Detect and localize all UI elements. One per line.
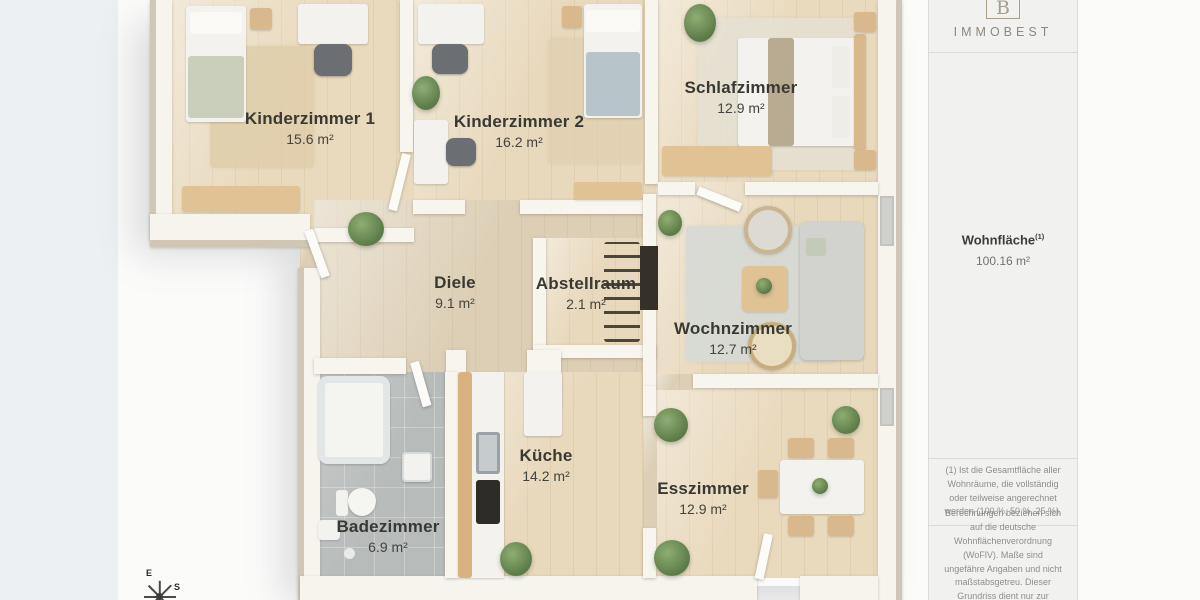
footnote-marker: (1) xyxy=(1035,232,1044,241)
room-label-schlafzimmer: Schlafzimmer 12.9 m² xyxy=(685,78,798,116)
dining-chair xyxy=(828,438,854,458)
flue-panel xyxy=(640,246,658,310)
sidebar: B IMMOBEST Wohnfläche(1) 100.16 m² (1) I… xyxy=(928,0,1078,600)
bed-pillow xyxy=(832,96,850,138)
headboard xyxy=(854,34,866,150)
background-left-strip xyxy=(0,0,118,600)
room-area: 12.7 m² xyxy=(674,341,792,357)
wall-under-schlafzimmer-b xyxy=(745,182,878,195)
logo-letter: B xyxy=(996,0,1010,18)
plant xyxy=(812,478,828,494)
dresser xyxy=(662,146,772,176)
sofa-pillow xyxy=(806,238,826,256)
room-area: 2.1 m² xyxy=(536,296,636,312)
wall-k2-schlafzimmer xyxy=(645,0,658,184)
stove xyxy=(476,480,500,524)
wall-exterior-bottom-right xyxy=(800,576,878,600)
room-name: Abstellraum xyxy=(536,274,636,294)
plant xyxy=(756,278,772,294)
kitchen-cabinet-front xyxy=(458,372,472,578)
immobest-logo-icon: B xyxy=(986,0,1020,19)
plant xyxy=(832,406,860,434)
compass-center xyxy=(156,593,163,600)
room-label-kinderzimmer-1: Kinderzimmer 1 15.6 m² xyxy=(245,109,375,147)
brand-name: IMMOBEST xyxy=(929,25,1077,39)
room-label-kinderzimmer-2: Kinderzimmer 2 16.2 m² xyxy=(454,112,584,150)
room-name: Wochnzimmer xyxy=(674,319,792,339)
nightstand xyxy=(854,12,876,32)
dresser xyxy=(414,120,448,184)
compass-label-e: E xyxy=(146,568,152,578)
nightstand xyxy=(562,6,582,28)
wall-wochnzimmer-esszimmer xyxy=(693,374,878,388)
room-label-diele: Diele 9.1 m² xyxy=(434,273,476,311)
bed-pillow xyxy=(190,12,242,34)
room-label-badezimmer: Badezimmer 6.9 m² xyxy=(336,517,439,555)
kitchen-sink xyxy=(476,432,500,474)
divider xyxy=(929,52,1077,53)
plant xyxy=(654,540,690,576)
room-name: Kinderzimmer 2 xyxy=(454,112,584,132)
room-label-kueche: Küche 14.2 m² xyxy=(520,446,573,484)
wall-under-schlafzimmer-a xyxy=(658,182,695,195)
room-area: 16.2 m² xyxy=(454,134,584,150)
desk xyxy=(418,4,484,44)
room-area: 12.9 m² xyxy=(685,100,798,116)
plant xyxy=(348,212,384,246)
wall-under-k2-a xyxy=(413,200,465,214)
desk xyxy=(298,4,368,44)
room-area: 12.9 m² xyxy=(657,501,749,517)
room-name: Kinderzimmer 1 xyxy=(245,109,375,129)
room-area: 6.9 m² xyxy=(336,539,439,555)
room-name: Diele xyxy=(434,273,476,293)
washing-machine xyxy=(402,452,432,482)
wall-exterior-left-upper xyxy=(150,0,172,240)
dining-chair xyxy=(758,470,778,498)
wall-exterior-step xyxy=(150,214,310,247)
living-area-value: 100.16 m² xyxy=(929,254,1077,268)
room-name: Schlafzimmer xyxy=(685,78,798,98)
room-label-wochnzimmer: Wochnzimmer 12.7 m² xyxy=(674,319,792,357)
living-area-summary: Wohnfläche(1) 100.16 m² xyxy=(929,232,1077,268)
window-right-lower xyxy=(880,388,894,426)
nightstand xyxy=(854,150,876,170)
wall-under-k2-b xyxy=(520,200,645,214)
compass-icon: E S xyxy=(120,560,210,600)
bed-pillow xyxy=(586,10,640,32)
floor-passage-wochnzimmer-esszimmer xyxy=(656,374,693,390)
room-area: 14.2 m² xyxy=(520,468,573,484)
nightstand xyxy=(250,8,272,30)
room-name: Badezimmer xyxy=(336,517,439,537)
dining-chair xyxy=(788,516,814,536)
wall-badezimmer-kueche xyxy=(445,372,458,578)
plant xyxy=(500,542,532,576)
living-area-label-text: Wohnfläche xyxy=(962,232,1035,247)
plant xyxy=(658,210,682,236)
bed-blanket xyxy=(586,52,640,116)
compass-label-s: S xyxy=(174,582,180,592)
plant xyxy=(684,4,716,42)
bed-pillow xyxy=(832,46,850,88)
bathtub xyxy=(318,376,390,464)
room-name: Esszimmer xyxy=(657,479,749,499)
wall-diele-badezimmer xyxy=(314,358,406,374)
room-label-abstellraum: Abstellraum 2.1 m² xyxy=(536,274,636,312)
wall-exterior-right xyxy=(878,0,902,600)
room-name: Küche xyxy=(520,446,573,466)
room-label-esszimmer: Esszimmer 12.9 m² xyxy=(657,479,749,517)
armchair xyxy=(744,206,792,254)
room-area: 15.6 m² xyxy=(245,131,375,147)
dining-chair xyxy=(828,516,854,536)
window-right-upper xyxy=(880,196,894,246)
toilet-tank xyxy=(336,490,348,516)
living-area-label: Wohnfläche(1) xyxy=(929,232,1077,247)
fridge xyxy=(524,372,562,436)
office-chair xyxy=(432,44,468,74)
sideboard xyxy=(182,186,300,212)
room-area: 9.1 m² xyxy=(434,295,476,311)
wall-k1-k2 xyxy=(400,0,413,152)
dining-chair xyxy=(788,438,814,458)
floor-plan-image: Kinderzimmer 1 15.6 m² Kinderzimmer 2 16… xyxy=(0,0,1200,600)
plant xyxy=(654,408,688,442)
wall-exterior-left-lower xyxy=(298,268,320,600)
office-chair xyxy=(314,44,352,76)
sideboard xyxy=(574,182,642,200)
wall-kueche-esszimmer-a xyxy=(643,386,656,416)
disclaimer-text: Berechnungen beziehen sich auf die deuts… xyxy=(929,525,1077,600)
wall-exterior-bottom-left xyxy=(300,576,757,600)
plant xyxy=(412,76,440,110)
bed-blanket xyxy=(188,56,244,118)
